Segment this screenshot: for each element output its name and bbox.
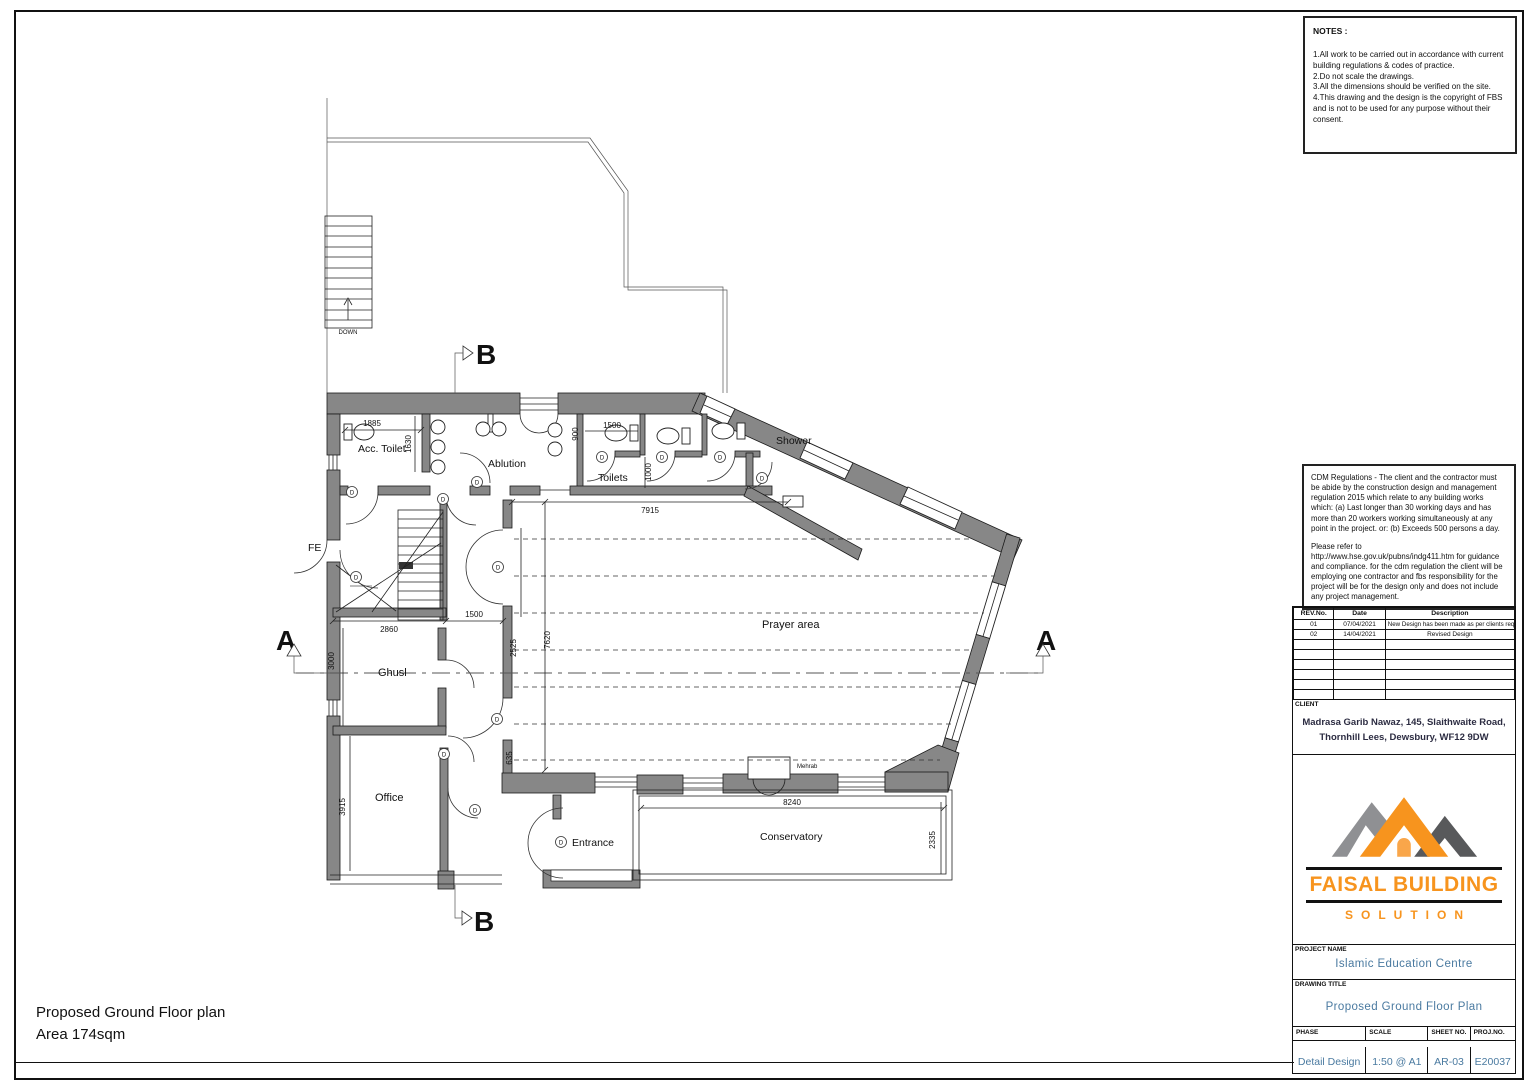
cdm-regulations-box: CDM Regulations - The client and the con…: [1302, 464, 1516, 610]
logo-rule-bottom: [1306, 900, 1502, 903]
project-name-box: PROJECT NAME Islamic Education Centre: [1293, 944, 1515, 979]
dim-3000: 3000: [327, 652, 336, 670]
dim-900: 900: [571, 427, 580, 441]
room-label-prayer: Prayer area: [762, 619, 820, 631]
project-name-value: Islamic Education Centre: [1293, 958, 1515, 970]
sheet-no-value: AR-03: [1428, 1047, 1470, 1074]
svg-text:D: D: [496, 566, 501, 572]
revision-row-empty: [1294, 690, 1515, 700]
logo-mountains-icon: [1319, 777, 1489, 865]
dim-2525: 2525: [509, 639, 518, 657]
exterior-stairs: DOWN: [325, 216, 372, 336]
revision-header-desc: Description: [1385, 608, 1514, 620]
dim-2335: 2335: [928, 831, 937, 849]
footer-area: Area 174sqm: [36, 1024, 225, 1046]
cdm-paragraph-2: Please refer to http://www.hse.gov.uk/pu…: [1311, 542, 1507, 603]
door-swings: [294, 414, 772, 878]
cdm-paragraph-1: CDM Regulations - The client and the con…: [1311, 473, 1507, 534]
drawing-footer: Proposed Ground Floor plan Area 174sqm: [36, 1002, 225, 1046]
notes-box: NOTES : 1.All work to be carried out in …: [1303, 16, 1517, 154]
room-label-conservatory: Conservatory: [760, 831, 823, 843]
revision-header-row: REV.No. Date Description: [1294, 608, 1515, 620]
section-b-bottom: B: [474, 906, 494, 937]
revision-header-no: REV.No.: [1294, 608, 1334, 620]
drawing-sheet: DOWN: [0, 0, 1536, 1086]
room-label-shower: Shower: [776, 435, 812, 447]
phase-value: Detail Design: [1293, 1047, 1366, 1074]
revision-table: REV.No. Date Description 01 07/04/2021 N…: [1293, 607, 1515, 700]
client-box: CLIENT Madrasa Garib Nawaz, 145, Slaithw…: [1293, 700, 1515, 755]
proj-no-value: E20037: [1471, 1047, 1515, 1074]
section-b-top: B: [476, 339, 496, 370]
phase-label: PHASE: [1293, 1027, 1366, 1041]
svg-text:D: D: [760, 477, 765, 483]
floor-plan: DOWN: [0, 0, 1296, 1062]
scale-value: 1:50 @ A1: [1366, 1047, 1428, 1074]
revision-row-empty: [1294, 650, 1515, 660]
room-label-ablution: Ablution: [488, 458, 526, 470]
drawing-title-box: DRAWING TITLE Proposed Ground Floor Plan: [1293, 979, 1515, 1026]
client-address-line1: Madrasa Garib Nawaz, 145, Slaithwaite Ro…: [1293, 716, 1515, 731]
notes-title: NOTES :: [1313, 26, 1507, 36]
svg-text:D: D: [350, 491, 355, 497]
dim-1885: 1885: [363, 419, 381, 428]
rev-date: 07/04/2021: [1334, 620, 1385, 630]
drawing-title-value: Proposed Ground Floor Plan: [1293, 1001, 1515, 1013]
drawing-area-divider: [14, 1062, 1294, 1063]
room-label-acc-toilet: Acc. Toilet: [358, 443, 406, 455]
revision-row-empty: [1294, 660, 1515, 670]
dim-8240: 8240: [783, 798, 801, 807]
dim-7620: 7620: [543, 631, 552, 649]
svg-text:D: D: [660, 456, 665, 462]
revision-row: 01 07/04/2021 New Design has been made a…: [1294, 620, 1515, 630]
svg-text:D: D: [600, 456, 605, 462]
room-label-mehrab: Mehrab: [797, 764, 818, 770]
rev-date: 14/04/2021: [1334, 630, 1385, 640]
existing-outline: [327, 98, 727, 393]
revision-row-empty: [1294, 680, 1515, 690]
svg-text:D: D: [473, 809, 478, 815]
room-label-office: Office: [375, 792, 404, 804]
logo-subname: SOLUTION: [1337, 908, 1471, 922]
windows: [329, 398, 885, 884]
svg-text:D: D: [718, 456, 723, 462]
down-label: DOWN: [339, 330, 358, 336]
notes-body: 1.All work to be carried out in accordan…: [1313, 50, 1507, 126]
svg-text:D: D: [441, 498, 446, 504]
rev-no: 01: [1294, 620, 1334, 630]
dim-1500b: 1500: [465, 610, 483, 619]
revision-row: 02 14/04/2021 Revised Design: [1294, 630, 1515, 640]
title-block: REV.No. Date Description 01 07/04/2021 N…: [1292, 606, 1516, 1074]
client-address-line2: Thornhill Lees, Dewsbury, WF12 9DW: [1293, 731, 1515, 746]
dim-7915: 7915: [641, 506, 659, 515]
svg-text:D: D: [442, 753, 447, 759]
dim-635: 635: [505, 751, 514, 765]
room-label-fe: FE: [308, 542, 321, 554]
revision-row-empty: [1294, 670, 1515, 680]
dim-3915: 3915: [338, 798, 347, 816]
room-label-toilets: Toilets: [598, 472, 628, 484]
rev-desc: Revised Design: [1385, 630, 1514, 640]
sheet-no-label: SHEET NO.: [1428, 1027, 1470, 1041]
revision-row-empty: [1294, 640, 1515, 650]
phase-scale-grid: PHASE SCALE SHEET NO. PROJ.NO. Detail De…: [1293, 1026, 1515, 1073]
room-label-entrance: Entrance: [572, 837, 614, 849]
company-logo: FAISAL BUILDING SOLUTION: [1293, 755, 1515, 944]
revision-header-date: Date: [1334, 608, 1385, 620]
room-label-ghusl: Ghusl: [378, 667, 407, 679]
dim-2860: 2860: [380, 625, 398, 634]
scale-label: SCALE: [1366, 1027, 1428, 1041]
client-address: Madrasa Garib Nawaz, 145, Slaithwaite Ro…: [1293, 716, 1515, 745]
svg-text:D: D: [475, 481, 480, 487]
logo-name: FAISAL BUILDING: [1309, 872, 1498, 897]
logo-rule-top: [1306, 867, 1502, 870]
project-name-label: PROJECT NAME: [1295, 946, 1347, 953]
svg-text:D: D: [354, 576, 359, 582]
proj-no-label: PROJ.NO.: [1471, 1027, 1515, 1041]
dim-1500a: 1500: [603, 421, 621, 430]
footer-title: Proposed Ground Floor plan: [36, 1002, 225, 1024]
svg-text:D: D: [559, 841, 564, 847]
svg-text:D: D: [495, 718, 500, 724]
internal-stairs: [336, 510, 443, 620]
dim-1000: 1000: [644, 463, 653, 481]
rev-desc: New Design has been made as per clients …: [1385, 620, 1514, 630]
client-label: CLIENT: [1295, 701, 1318, 708]
drawing-title-label: DRAWING TITLE: [1295, 981, 1346, 988]
rev-no: 02: [1294, 630, 1334, 640]
